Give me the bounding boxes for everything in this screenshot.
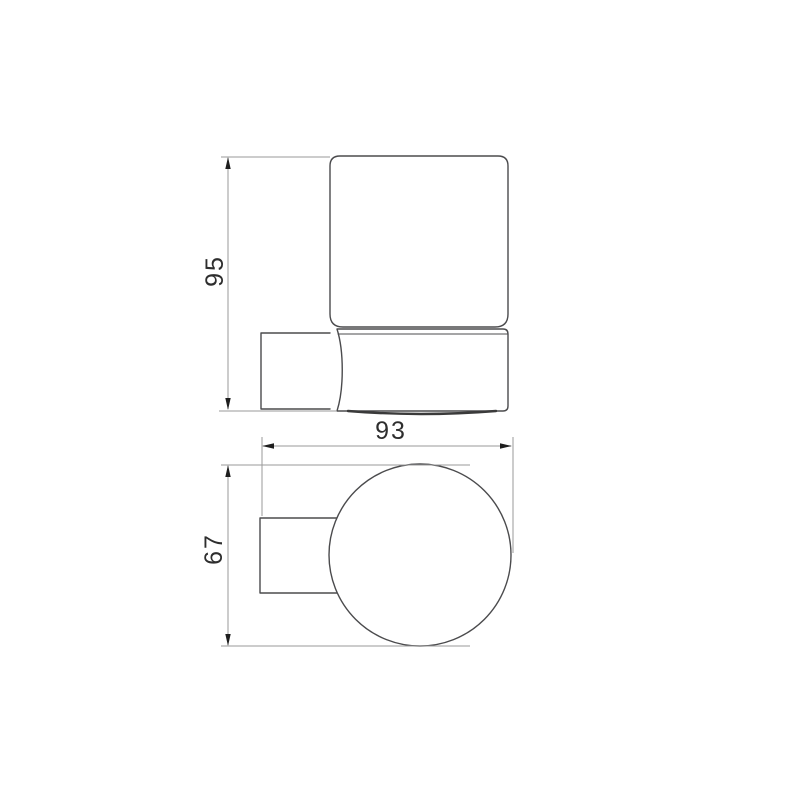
holder-circle-outline: [329, 464, 511, 646]
bottom-view-object: [260, 464, 511, 646]
dim-width-label: 93: [375, 417, 407, 445]
front-view-object: [261, 156, 508, 414]
arrow-right-icon: [500, 443, 512, 448]
bottom-view: 93 67: [200, 417, 513, 646]
dim-height-label: 95: [201, 255, 229, 287]
arrow-left-icon: [262, 443, 274, 448]
arrow-down-icon: [225, 634, 230, 646]
tumbler-cup-outline: [330, 156, 508, 327]
wall-bracket-profile: [261, 333, 330, 409]
arrow-up-icon: [225, 157, 230, 169]
dim-depth-label: 67: [200, 533, 228, 565]
front-view-dimensions: 95: [201, 157, 336, 411]
holder-ring-profile: [337, 329, 508, 411]
front-view: 95: [201, 156, 508, 414]
arrow-up-icon: [225, 465, 230, 477]
arrow-down-icon: [225, 398, 230, 410]
technical-drawing: 95 93: [0, 0, 800, 800]
